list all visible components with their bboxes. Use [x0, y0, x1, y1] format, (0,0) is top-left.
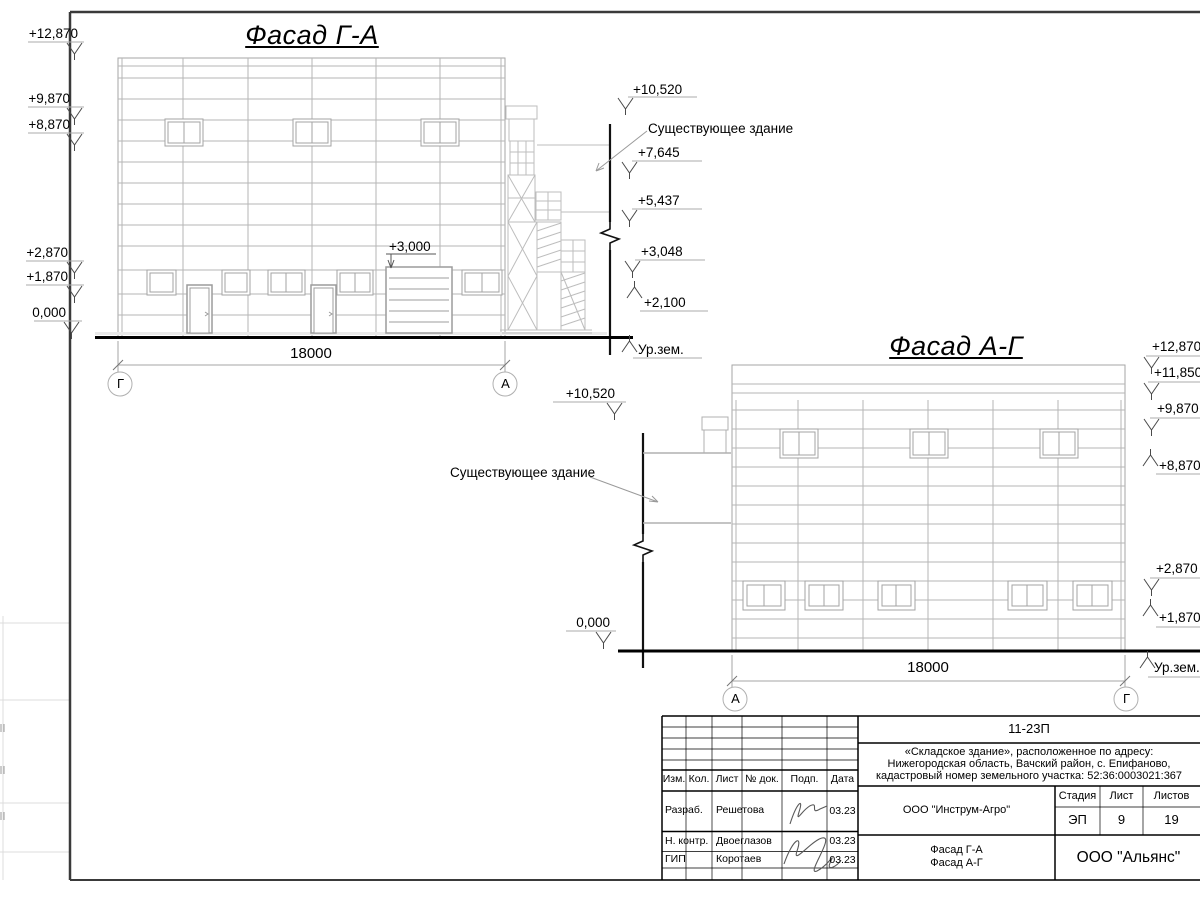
elevation-marks-f2-left — [553, 402, 626, 631]
facade-ag-building — [732, 365, 1125, 651]
axis-bubble-label: Г — [108, 377, 133, 392]
window — [805, 581, 843, 610]
elevation-label: +1,870 — [1159, 610, 1200, 625]
window — [268, 270, 305, 295]
window — [337, 270, 373, 295]
door — [187, 285, 212, 333]
stair-tower — [500, 106, 609, 333]
tb-name: Коротаев — [716, 854, 761, 866]
elevation-label: +2,100 — [644, 295, 686, 310]
elevation-label: +9,870 — [18, 91, 70, 106]
existing-building-f2 — [634, 417, 731, 668]
elevation-label: +5,437 — [638, 193, 680, 208]
window — [222, 270, 250, 295]
facade-ag-title: Фасад А-Г — [881, 331, 1031, 361]
tb-sheets-header: Листов — [1143, 790, 1200, 802]
tb-sheet-value: 9 — [1100, 813, 1143, 828]
facade-ga-title: Фасад Г-А — [237, 20, 387, 50]
tb-role: Разраб. — [665, 805, 703, 817]
tb-role: ГИП — [665, 854, 686, 866]
tb-stage-header: Стадия — [1055, 790, 1100, 802]
tb-header-kol: Кол. — [686, 774, 712, 786]
dimension-label-f2: 18000 — [878, 660, 978, 677]
window — [1040, 429, 1078, 458]
elevation-label: +7,645 — [638, 145, 680, 160]
tb-sheets-value: 19 — [1143, 813, 1200, 828]
window — [910, 429, 948, 458]
dimension-label-f1: 18000 — [261, 346, 361, 363]
tb-project-line1: «Складское здание», расположенное по адр… — [860, 746, 1198, 758]
elevation-label: +10,520 — [555, 386, 615, 401]
tb-drawing-title-1: Фасад Г-А — [860, 844, 1053, 856]
tb-header-podp: Подп. — [782, 774, 827, 786]
window — [421, 119, 459, 146]
window — [1008, 581, 1047, 610]
tb-contractor: ООО "Альянс" — [1057, 849, 1200, 866]
signature-razrab — [790, 803, 827, 824]
tb-date: 03.23 — [827, 836, 858, 848]
window — [462, 270, 502, 295]
window — [165, 119, 203, 146]
tb-company: ООО "Инструм-Агро" — [860, 804, 1053, 816]
axis-bubble-label: А — [723, 692, 748, 707]
existing-building-label: Существующее здание — [648, 121, 793, 136]
ground-level-label: Ур.зем. — [638, 342, 684, 357]
facade-ag-drawing — [553, 356, 1200, 711]
tb-role: Н. контр. — [665, 836, 708, 848]
left-margin-stamp — [0, 616, 70, 880]
facade-ga-drawing — [26, 42, 708, 396]
elevation-label: +1,870 — [16, 269, 68, 284]
elevation-label: +8,870 — [18, 117, 70, 132]
tb-name: Решетова — [716, 805, 764, 817]
ground-level-label: Ур.зем. — [1154, 660, 1200, 675]
axis-bubble-label: А — [493, 377, 518, 392]
tb-sheet-header: Лист — [1100, 790, 1143, 802]
tb-date: 03.23 — [827, 855, 858, 867]
tb-name: Двоеглазов — [716, 836, 772, 848]
elevation-label: +11,850 — [1154, 365, 1200, 380]
door — [311, 285, 336, 333]
window — [1073, 581, 1112, 610]
window — [743, 581, 785, 610]
elevation-label: +2,870 — [1156, 561, 1198, 576]
tb-header-doc: № док. — [742, 774, 782, 786]
elevation-label: +12,870 — [1152, 339, 1200, 354]
existing-building-line-f1 — [601, 124, 619, 355]
tb-stage-value: ЭП — [1055, 813, 1100, 828]
axis-bubble-label: Г — [1114, 692, 1139, 707]
tb-project-line3: кадастровый номер земельного участка: 52… — [860, 770, 1198, 782]
tb-drawing-title-2: Фасад А-Г — [860, 857, 1053, 869]
existing-building-label: Существующее здание — [450, 465, 595, 480]
elevation-label: +2,870 — [16, 245, 68, 260]
elevation-label: +9,870 — [1157, 401, 1199, 416]
window — [780, 429, 818, 458]
elevation-label: +3,048 — [641, 244, 683, 259]
window — [293, 119, 331, 146]
sectional-gate — [386, 267, 452, 333]
tb-header-data: Дата — [827, 774, 858, 786]
gate-elevation-label: +3,000 — [389, 239, 431, 254]
elevation-label: 0,000 — [570, 615, 610, 630]
elevation-label: +8,870 — [1159, 458, 1200, 473]
window — [147, 270, 176, 295]
tb-date: 03.23 — [827, 806, 858, 818]
tb-doc-number: 11-23П — [858, 722, 1200, 737]
elevation-label: +10,520 — [633, 82, 682, 97]
tb-header-izm: Изм. — [662, 774, 686, 786]
tb-header-list: Лист — [712, 774, 742, 786]
window — [878, 581, 915, 610]
leader-existing-f2 — [590, 477, 658, 502]
elevation-label: 0,000 — [26, 305, 66, 320]
drawing-sheet: Фасад Г-А Фасад А-Г +12,870 +9,870 +8,87… — [0, 0, 1200, 900]
tb-project-line2: Нижегородская область, Вачский район, с.… — [860, 758, 1198, 770]
elevation-label: +12,870 — [18, 26, 78, 41]
